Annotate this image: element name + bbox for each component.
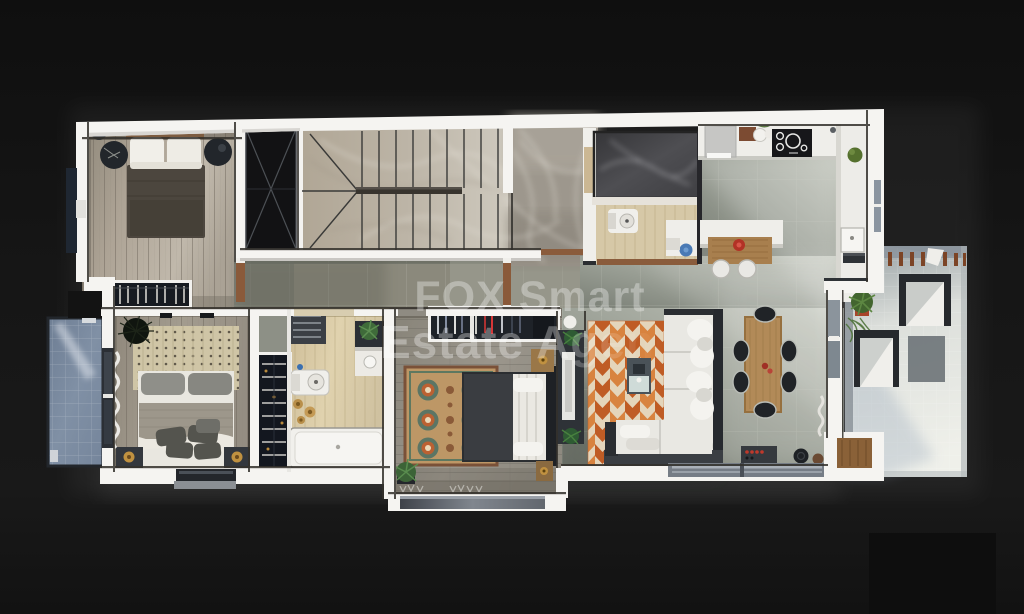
svg-text:Estate Agency: Estate Agency xyxy=(380,316,708,368)
svg-text:FOX Smart: FOX Smart xyxy=(414,273,645,321)
